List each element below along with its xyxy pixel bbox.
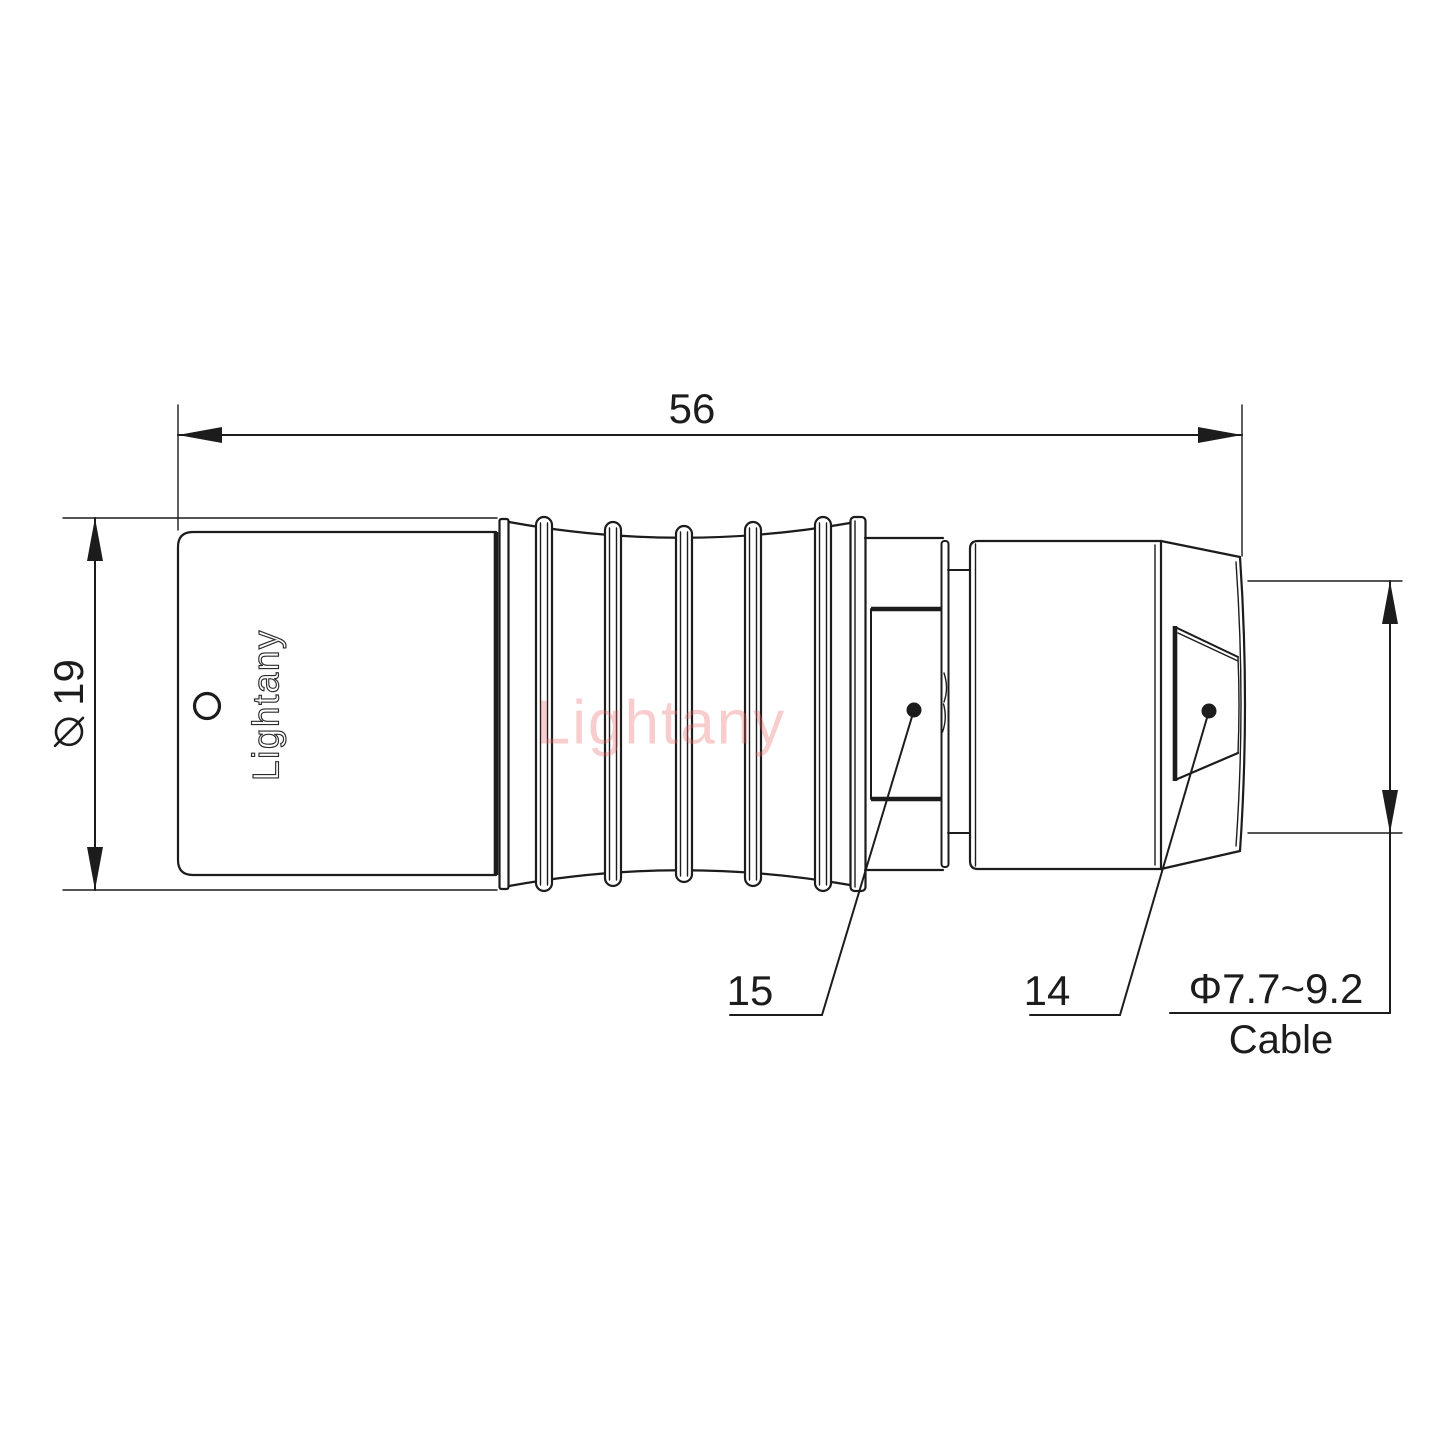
shell-hole xyxy=(195,694,220,719)
ferrule-part-15 xyxy=(865,538,949,870)
overall-length-value: 56 xyxy=(669,388,716,430)
cable-range-value: Φ7.7~9.2 xyxy=(1189,968,1364,1010)
connector-line-drawing: Lightany xyxy=(0,0,1440,1440)
coupling-nut-part-14 xyxy=(970,541,1245,869)
leader-dot xyxy=(1202,704,1217,719)
leader-dot xyxy=(907,703,922,718)
diameter-value: 19 xyxy=(48,659,90,706)
diameter-label: 19 xyxy=(48,659,90,753)
arrowhead-down xyxy=(87,847,103,890)
boot-rib xyxy=(815,517,831,891)
arrowhead-up xyxy=(1382,581,1398,624)
neck xyxy=(948,570,970,833)
strain-relief-boot xyxy=(500,517,866,891)
shell-engraving: Lightany xyxy=(246,629,287,781)
boot-flange xyxy=(500,519,509,889)
part-label-15: 15 xyxy=(727,970,774,1012)
arrowhead-up xyxy=(87,518,103,561)
boot-end-band xyxy=(851,517,866,891)
boot-rib xyxy=(745,522,761,886)
arrowhead-down xyxy=(1382,790,1398,833)
boot-rib xyxy=(676,526,692,882)
boot-rib xyxy=(605,522,621,886)
arrowhead-right xyxy=(1198,427,1242,443)
part-label-14: 14 xyxy=(1024,970,1071,1012)
boot-rib xyxy=(536,517,552,891)
diameter-symbol-icon xyxy=(48,711,90,753)
arrowhead-left xyxy=(178,427,222,443)
connector-shell: Lightany xyxy=(178,532,496,875)
technical-drawing-canvas: Lightany xyxy=(0,0,1440,1440)
cable-word-label: Cable xyxy=(1229,1020,1334,1060)
cable-entry-opening xyxy=(1175,626,1239,781)
